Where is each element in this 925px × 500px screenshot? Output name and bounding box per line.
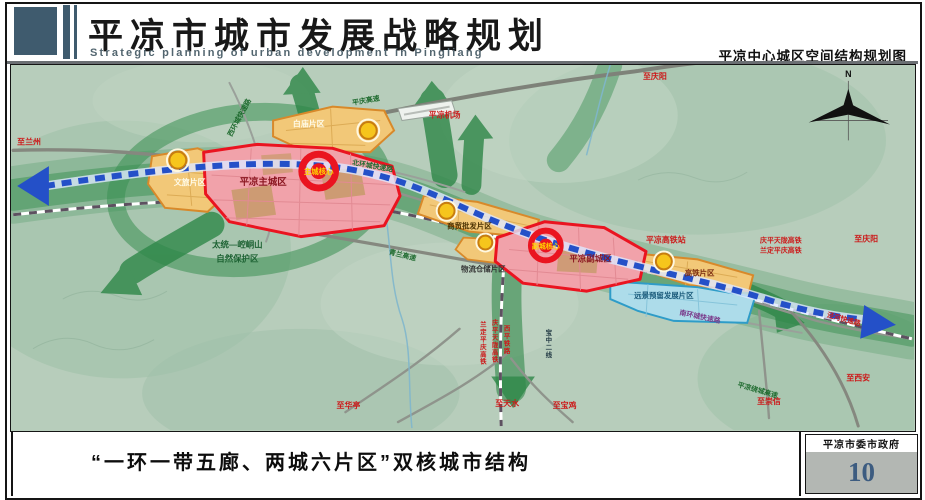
label-hsr-station: 平凉高铁站 bbox=[646, 235, 686, 245]
label-to-baoji: 至宝鸡 bbox=[553, 400, 577, 410]
footer-divider bbox=[799, 432, 801, 496]
zone-main-city bbox=[204, 144, 400, 236]
label-gaotie: 高铁片区 bbox=[685, 267, 715, 277]
page-footer: “一环一带五廊、两城六片区”双核城市结构 平凉市委市政府 10 bbox=[6, 432, 918, 496]
label-hsr-qptl-s: 庆平天陇高铁 bbox=[491, 318, 499, 364]
node-shangmao bbox=[437, 201, 457, 221]
label-hsr-ldpq-ne: 兰定平庆高铁 bbox=[760, 245, 802, 254]
organization-name: 平凉市委市政府 bbox=[806, 435, 917, 452]
label-shangmao: 商贸批发片区 bbox=[447, 221, 492, 231]
header-accent-square bbox=[14, 7, 57, 55]
label-xiping-railway: 西平铁路 bbox=[503, 325, 511, 355]
label-wenlv: 文旅片区 bbox=[174, 177, 206, 187]
label-to-qingyang-top: 至庆阳 bbox=[643, 71, 667, 81]
label-sub-city: 平凉副城区 bbox=[569, 253, 612, 263]
node-baimiao bbox=[357, 120, 379, 142]
label-airport: 平凉机场 bbox=[429, 110, 461, 120]
node-gaotie bbox=[654, 251, 674, 271]
core-sub-label: 副城核心 bbox=[532, 241, 560, 250]
label-to-tianshui: 至天水 bbox=[495, 398, 519, 408]
core-main-label: 主城核心 bbox=[304, 166, 334, 176]
page-subtitle-en: Strategic planning of urban development … bbox=[90, 47, 484, 59]
label-yuanjing: 远景预留发展片区 bbox=[634, 290, 694, 300]
label-pingqing-expwy: 平庆高速 bbox=[351, 93, 380, 107]
page-number: 10 bbox=[806, 452, 917, 493]
label-hsr-ldpq-s: 兰定平庆高铁 bbox=[479, 320, 487, 366]
label-wuliu: 物流仓储片区 bbox=[461, 263, 506, 273]
footer-left-rule bbox=[11, 432, 13, 496]
label-to-qingyang-east: 至庆阳 bbox=[854, 234, 878, 244]
label-main-city: 平凉主城区 bbox=[240, 176, 288, 187]
footer-caption: “一环一带五廊、两城六片区”双核城市结构 bbox=[91, 446, 531, 475]
label-to-xian: 至西安 bbox=[846, 372, 870, 382]
label-reserve-1: 太统—崆峒山 bbox=[211, 240, 263, 250]
map-canvas: 主城核心 副城核心 文旅片区 白庙片区 平凉主城区 商贸批发片区 物流仓储片区 … bbox=[11, 65, 914, 430]
header-accent-bar-thin bbox=[74, 5, 77, 59]
footer-gov-box: 平凉市委市政府 10 bbox=[805, 434, 918, 494]
label-baozhong-line2: 宝中二线 bbox=[544, 327, 551, 358]
planning-page: 平凉市城市发展战略规划 Strategic planning of urban … bbox=[0, 0, 925, 500]
header-accent-bar bbox=[63, 5, 70, 59]
label-to-huating: 至华亭 bbox=[337, 400, 361, 410]
planning-map: 主城核心 副城核心 文旅片区 白庙片区 平凉主城区 商贸批发片区 物流仓储片区 … bbox=[10, 64, 916, 432]
label-reserve-2: 自然保护区 bbox=[216, 253, 259, 263]
label-baimiao: 白庙片区 bbox=[293, 118, 325, 128]
compass-north-label: N bbox=[845, 69, 851, 79]
node-wuliu bbox=[476, 234, 494, 252]
node-wenlv bbox=[167, 149, 189, 171]
label-to-lanzhou: 至兰州 bbox=[17, 136, 41, 146]
label-hsr-qptl-ne: 庆平天陇高铁 bbox=[759, 236, 802, 245]
